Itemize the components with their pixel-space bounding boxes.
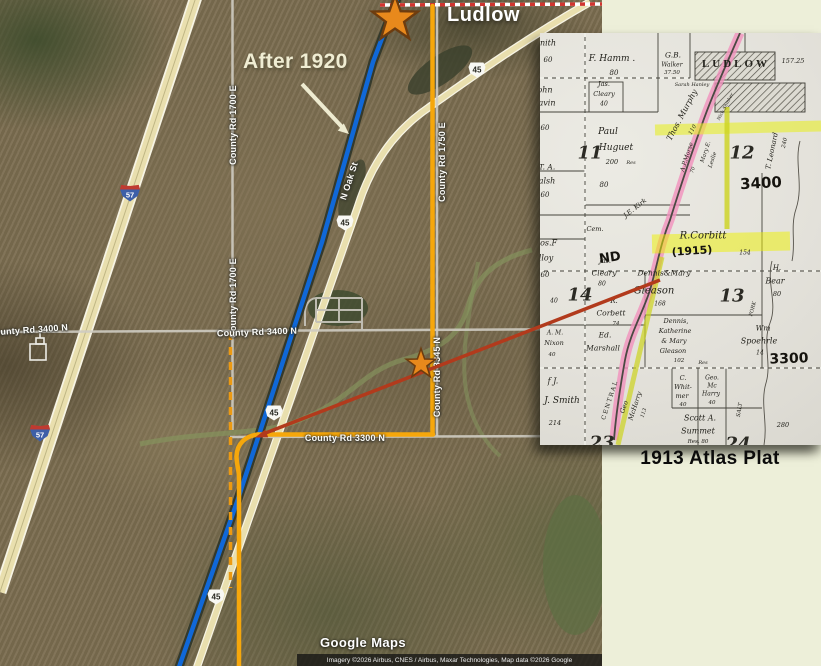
orange-route-line <box>237 6 434 666</box>
map-attribution: Imagery ©2026 Airbus, CNES / Airbus, Max… <box>297 654 602 666</box>
building-icon <box>30 333 46 360</box>
after-1920-label: After 1920 <box>243 50 348 74</box>
ludlow-town-block <box>695 52 775 80</box>
railroad-tree-line <box>178 0 398 666</box>
yellow-highlight-corbitt <box>652 241 790 244</box>
interstate-57-road <box>0 0 197 592</box>
slide-canvas: County Rd 1700 ECounty Rd 1700 ECounty R… <box>0 0 821 666</box>
plat-caption: 1913 Atlas Plat <box>600 448 820 470</box>
atlas-plat-1913: nith60F. Hamm .80G.B.Walker37.50LUDLOW15… <box>540 33 821 445</box>
tree-line <box>401 37 479 104</box>
plat-creeks <box>764 141 800 445</box>
yellow-highlight-band <box>655 126 821 130</box>
google-maps-watermark: Google Maps <box>320 635 406 650</box>
ludlow-label: Ludlow <box>447 4 520 27</box>
field-patch <box>543 495 607 635</box>
plat-linework <box>540 33 821 445</box>
waterway <box>464 262 500 456</box>
us-45-road <box>196 2 590 666</box>
